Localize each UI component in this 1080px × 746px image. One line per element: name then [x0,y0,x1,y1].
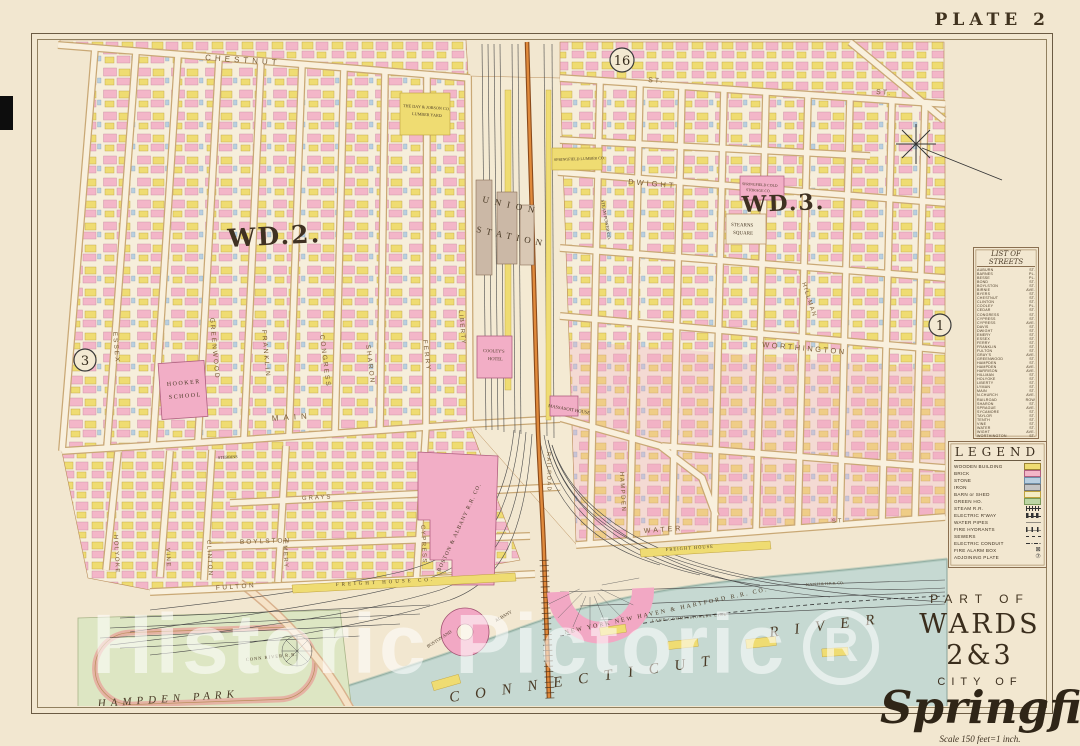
legend-list: WOODEN BUILDING BRICK STONE IRON BARN or… [954,463,1041,561]
legend-title: LEGEND [954,445,1041,461]
legend-label: ELECTRIC CONDUIT [954,540,1004,547]
legend-row: WOODEN BUILDING [954,463,1041,470]
title-part-of: PART OF [880,592,1080,606]
hooker-school-building [158,360,208,419]
legend-swatch [1024,498,1041,505]
legend-swatch [1024,470,1041,477]
legend-label: FIRE HYDRANTS [954,526,995,533]
legend-label: STONE [954,477,971,484]
title-wards: WARDS 2&3 [880,609,1080,671]
atlas-page: CHESTNUT ST. ST. DWIGHT WORTHINGTON MAIN… [0,0,1080,746]
legend-row: ADJOINING PLATE ⑦ [954,554,1041,561]
street-index-name: WORTHINGTON [977,434,1007,438]
albany-label: ALBANY [494,609,513,623]
legend-swatch [1026,520,1041,525]
legend-swatch [1026,506,1041,511]
legend-swatch [1026,527,1041,532]
legend-swatch [1024,463,1041,470]
street-index-panel: LIST OF STREETS AUBURN ST. BARNES PL. BE… [973,247,1039,439]
legend-label: BARN or SHED [954,491,990,498]
legend-label: ADJOINING PLATE [954,554,999,561]
cooleys-hotel-label-1: COOLEY'S [483,348,505,354]
legend-label: WATER PIPES [954,519,988,526]
turntable [282,636,312,666]
legend-label: BRICK [954,470,970,477]
legend-label: GREEN HO. [954,498,982,505]
street-label-vine: VINE [164,548,171,568]
legend-swatch [1024,484,1041,491]
legend-panel: LEGEND WOODEN BUILDING BRICK STONE IRON [948,441,1047,568]
street-index-title: LIST OF STREETS [977,250,1035,267]
legend-label: ELECTRIC R'WAY [954,512,996,519]
legend-swatch [1026,541,1041,546]
legend-row: ELECTRIC R'WAY [954,512,1041,519]
legend-label: FIRE ALARM BOX [954,547,997,554]
legend-label: SEWERS [954,533,976,540]
legend-swatch [1026,513,1041,518]
legend-swatch [1024,491,1041,498]
legend-row: FIRE ALARM BOX ⊠ [954,547,1041,554]
street-label-st-b: ST. [876,89,892,97]
ward-3-label: WD.3. [740,189,825,218]
legend-swatch [1026,534,1041,539]
street-index-row: WORTHINGTON ST. [977,434,1035,438]
adjoining-plate-right: 1 [936,319,944,334]
street-label-railroad: RAILROAD [545,452,552,492]
legend-label: WOODEN BUILDING [954,463,1003,470]
cooleys-hotel-label-2: HOTEL [488,356,503,362]
stearns-square [726,214,766,244]
legend-label: IRON [954,484,967,491]
street-label-water-st: ST. [832,518,847,525]
legend-row: IRON [954,484,1041,491]
legend-row: WATER PIPES [954,519,1041,526]
legend-row: FIRE HYDRANTS [954,526,1041,533]
stearns-square-label-2: SQUARE [733,231,753,237]
legend-swatch [1024,477,1041,484]
legend-row: SEWERS [954,533,1041,540]
adjoining-plate-left: 3 [81,354,89,369]
street-label-st-a: ST. [648,77,665,85]
legend-row: STEAM R.R. [954,505,1041,512]
legend-swatch: ⊠ [1026,548,1041,553]
plate-number: PLATE 2 [935,10,1050,30]
scale-text: Scale 150 feet=1 inch. [880,734,1080,744]
stearns-square-label-1: STEARNS [731,223,754,229]
stebbins-label: STEBBINS [218,454,239,460]
legend-row: BARN or SHED [954,491,1041,498]
legend-row: BRICK [954,470,1041,477]
legend-row: STONE [954,477,1041,484]
legend-swatch: ⑦ [1026,555,1041,560]
title-city-name: Springfield [880,686,1080,730]
legend-row: ELECTRIC CONDUIT [954,540,1041,547]
ward-2-label: WD.2. [226,219,322,253]
street-index-list: AUBURN ST. BARNES PL. BESSE PL. BOND ST.… [977,268,1035,438]
street-index-type: ST. [1029,434,1035,438]
title-block: PART OF WARDS 2&3 CITY OF Springfield Sc… [880,592,1080,746]
edge-tab-mark [0,96,13,130]
legend-row: GREEN HO. [954,498,1041,505]
legend-label: STEAM R.R. [954,505,983,512]
adjoining-plate-top: 16 [614,54,631,69]
